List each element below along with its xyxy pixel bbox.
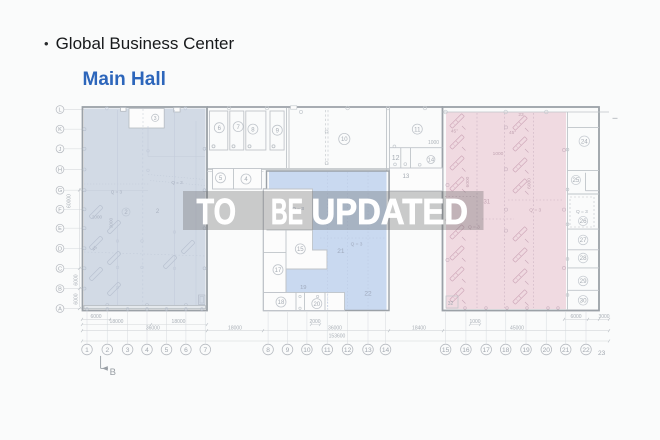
svg-text:17: 17 [483, 347, 491, 354]
svg-text:15: 15 [297, 247, 304, 253]
svg-text:J: J [59, 147, 62, 153]
svg-text:6: 6 [218, 126, 222, 132]
svg-text:UPDATED: UPDATED [312, 191, 469, 232]
svg-text:18: 18 [278, 300, 285, 306]
svg-text:60000: 60000 [67, 194, 73, 208]
svg-text:6000: 6000 [74, 274, 80, 285]
svg-text:23: 23 [598, 350, 606, 357]
svg-text:H: H [58, 168, 62, 174]
svg-text:36000: 36000 [328, 325, 342, 331]
svg-text:1000: 1000 [428, 140, 439, 146]
svg-text:14: 14 [428, 158, 435, 164]
svg-text:1: 1 [85, 347, 89, 354]
svg-text:5: 5 [165, 347, 169, 354]
svg-text:18000: 18000 [110, 319, 124, 325]
svg-text:32: 32 [448, 301, 454, 307]
svg-text:TO: TO [197, 191, 237, 232]
svg-text:7: 7 [237, 125, 241, 131]
svg-text:3000: 3000 [598, 314, 609, 320]
svg-text:10: 10 [341, 137, 348, 143]
svg-text:E: E [58, 226, 62, 232]
svg-text:30: 30 [580, 298, 587, 305]
svg-text:23: 23 [518, 112, 524, 118]
svg-text:Q = 3: Q = 3 [351, 242, 363, 248]
svg-text:6000: 6000 [570, 314, 581, 320]
svg-text:18000: 18000 [172, 319, 186, 325]
svg-text:Q = 3: Q = 3 [111, 189, 123, 194]
svg-text:7: 7 [203, 347, 207, 354]
svg-text:18: 18 [502, 347, 510, 354]
svg-text:13: 13 [364, 347, 372, 354]
svg-text:9: 9 [286, 347, 290, 354]
svg-text:2: 2 [105, 347, 109, 354]
svg-text:6000: 6000 [465, 176, 471, 187]
svg-text:19: 19 [300, 285, 306, 291]
svg-text:24: 24 [581, 138, 588, 145]
svg-text:6000: 6000 [74, 293, 80, 304]
svg-text:F: F [58, 207, 62, 213]
svg-text:D: D [58, 246, 62, 252]
svg-text:31: 31 [483, 200, 490, 206]
svg-text:20: 20 [543, 347, 551, 354]
svg-text:29: 29 [580, 278, 587, 285]
svg-text:13: 13 [402, 173, 409, 180]
svg-text:18400: 18400 [412, 325, 426, 331]
svg-text:19: 19 [522, 347, 530, 354]
svg-text:27: 27 [580, 237, 587, 244]
svg-text:A: A [58, 307, 62, 313]
svg-text:Q = 3: Q = 3 [576, 209, 588, 215]
svg-text:14: 14 [382, 347, 390, 354]
svg-text:21: 21 [337, 248, 345, 255]
svg-text:16: 16 [462, 347, 470, 354]
svg-text:3: 3 [154, 116, 157, 122]
svg-text:10: 10 [303, 347, 311, 354]
svg-text:45°: 45° [509, 130, 516, 136]
svg-text:1000: 1000 [493, 151, 504, 157]
svg-text:4: 4 [145, 347, 149, 354]
svg-text:Q = 3: Q = 3 [171, 180, 183, 185]
svg-text:15: 15 [442, 347, 450, 354]
svg-text:45000: 45000 [510, 325, 524, 331]
svg-text:2000: 2000 [309, 319, 320, 325]
svg-text:11: 11 [414, 127, 421, 133]
svg-text:12: 12 [392, 155, 400, 162]
svg-text:28: 28 [580, 255, 587, 262]
svg-text:20: 20 [313, 302, 320, 308]
svg-text:25: 25 [572, 177, 579, 184]
svg-text:6: 6 [184, 347, 188, 354]
svg-text:B: B [58, 287, 62, 293]
svg-text:6000: 6000 [526, 178, 532, 189]
svg-text:12: 12 [344, 347, 352, 354]
svg-text:C: C [58, 266, 62, 272]
svg-text:8: 8 [251, 127, 255, 133]
svg-text:3: 3 [126, 347, 130, 354]
svg-text:11: 11 [324, 347, 331, 354]
svg-text:153600: 153600 [329, 334, 346, 340]
svg-text:9: 9 [276, 128, 280, 134]
svg-text:BE: BE [271, 191, 303, 232]
svg-text:45°: 45° [451, 129, 458, 135]
svg-text:18000: 18000 [228, 325, 242, 331]
svg-text:8: 8 [266, 347, 270, 354]
svg-text:21: 21 [562, 347, 570, 354]
svg-text:1000: 1000 [469, 319, 480, 325]
svg-text:G: G [58, 188, 62, 194]
svg-text:36000: 36000 [146, 325, 160, 331]
svg-text:22: 22 [364, 291, 372, 298]
svg-text:K: K [58, 127, 62, 133]
svg-text:L: L [58, 108, 61, 114]
svg-text:Q = 3: Q = 3 [529, 208, 541, 214]
svg-text:B: B [110, 367, 116, 378]
svg-text:6000: 6000 [90, 314, 101, 320]
svg-text:26: 26 [580, 218, 587, 225]
svg-text:17: 17 [275, 268, 282, 274]
svg-text:22: 22 [582, 347, 590, 354]
